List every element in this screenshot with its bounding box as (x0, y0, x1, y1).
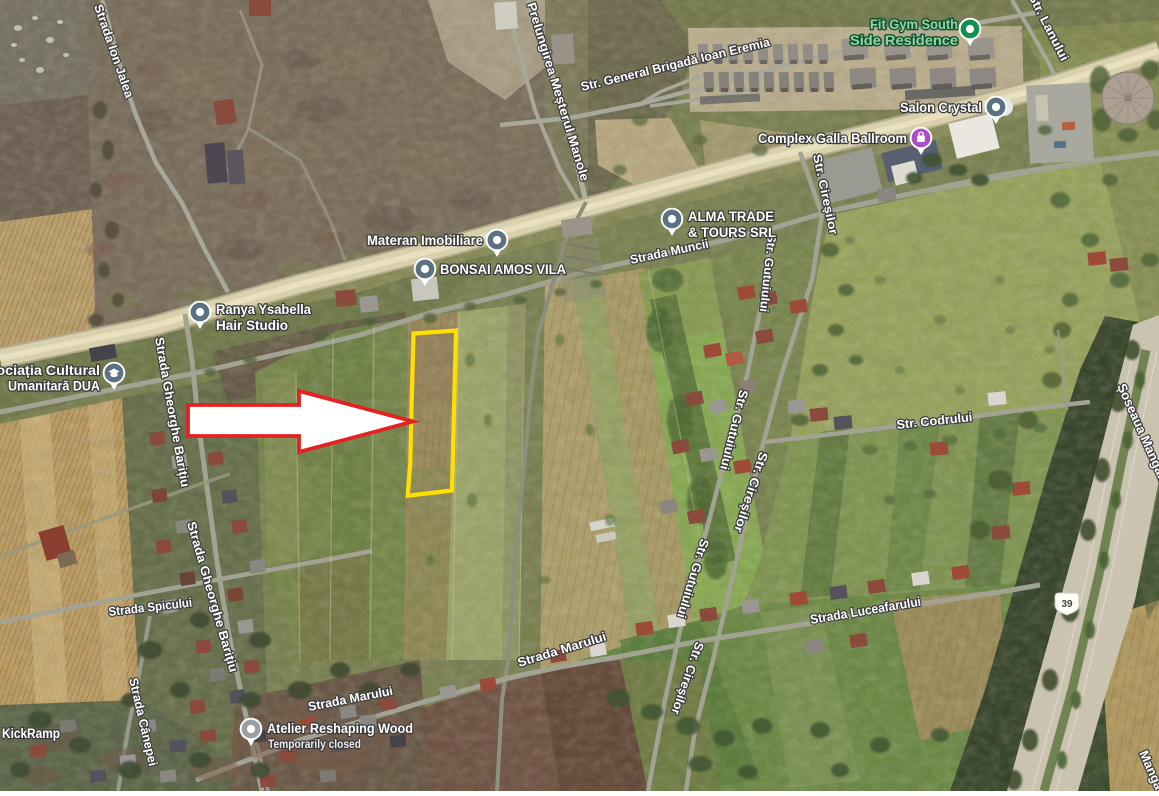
svg-text:39: 39 (1061, 599, 1073, 610)
svg-text:Materan Imobiliare: Materan Imobiliare (367, 233, 483, 248)
svg-text:Ranya Ysabella: Ranya Ysabella (216, 302, 311, 317)
svg-text:Asociația Cultural: Asociația Cultural (0, 363, 100, 378)
svg-text:Fit Gym South: Fit Gym South (870, 17, 958, 32)
svg-text:Side Residence: Side Residence (850, 33, 959, 48)
svg-text:Temporarily closed: Temporarily closed (268, 739, 361, 751)
svg-text:Umanitară DUA: Umanitară DUA (8, 379, 100, 394)
svg-text:Complex Galla Ballroom: Complex Galla Ballroom (758, 131, 907, 146)
svg-text:Atelier Reshaping Wood: Atelier Reshaping Wood (267, 721, 413, 736)
svg-text:Salon Crystal: Salon Crystal (900, 100, 982, 115)
svg-text:ALMA TRADE: ALMA TRADE (688, 209, 774, 224)
svg-text:Hair Studio: Hair Studio (216, 318, 288, 333)
svg-text:BONSAI AMOS VILA: BONSAI AMOS VILA (440, 262, 566, 277)
svg-text:KickRamp: KickRamp (2, 726, 60, 741)
svg-text:& TOURS SRL: & TOURS SRL (688, 225, 776, 240)
